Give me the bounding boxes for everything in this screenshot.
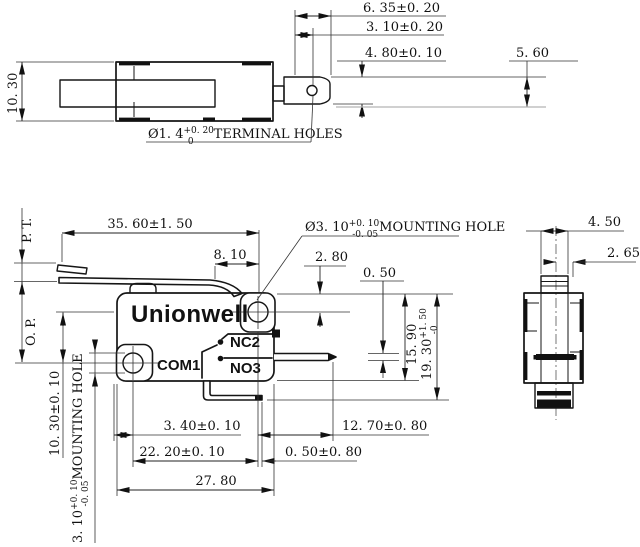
dim-body-width: 27. 80 [195,474,236,489]
lever-free-tip [57,265,87,274]
brand-logo: Unionwell [131,301,249,328]
top-view-terminal-neck [273,86,284,101]
dim-terminal-extension: 12. 70±0. 80 [342,419,427,434]
dim-hole-vertical-pitch: 10. 30±0. 10 [48,371,63,456]
dim-lever-end-offset: 8. 10 [213,248,246,263]
top-view-body [116,62,273,121]
dim-hole-edge-offset: 3. 40±0. 10 [163,419,240,434]
label-terminal-holes: Ø1. 4+0. 200TERMINAL HOLES [148,126,343,147]
dim-lever-length: 35. 60±1. 50 [107,217,192,232]
label-com1: COM1 [157,357,200,374]
label-left-mounting-hole: 3. 10+0. 10-0. 05MOUNTING HOLE [70,353,91,543]
technical-drawing: 10. 30 6. 35±0. 20 3. 10±0. 20 4. 80±0. … [0,0,640,547]
dim-terminal-edge-offset: 0. 50±0. 80 [285,445,362,460]
label-operating-position: O. P. [24,318,39,346]
dim-hole-to-top: 2. 80 [315,250,348,265]
label-nc2: NC2 [230,334,260,351]
label-no3: NO3 [230,360,261,377]
nc-contact-dot [218,339,224,345]
no-contact-dot [218,356,224,362]
common-pole-line [202,345,217,378]
side-terminal-bar [536,354,574,360]
dim-terminal-width: 4. 80±0. 10 [365,46,442,61]
no-terminal [274,354,336,361]
dim-top-body-depth: 10. 30 [6,73,21,114]
com-terminal-tip [255,396,262,401]
front-view: Unionwell COM1 NC2 NO3 35. 60±1. 50 8. 1… [14,208,505,543]
dim-hole-offset: 3. 10±0. 20 [366,20,443,35]
side-body [524,293,583,383]
side-view: 4. 50 2. 65 [524,215,640,420]
label-mounting-hole: Ø3. 10+0. 10-0. 05MOUNTING HOLE [305,219,505,240]
side-plunger [541,276,568,293]
top-view: 10. 30 6. 35±0. 20 3. 10±0. 20 4. 80±0. … [6,1,578,147]
top-view-lever [60,80,215,107]
dim-terminal-thickness: 0. 50 [363,266,396,281]
drawing-canvas: 10. 30 6. 35±0. 20 3. 10±0. 20 4. 80±0. … [0,0,640,547]
nc-terminal-stub [272,330,280,338]
terminal-hole [307,86,317,96]
dim-terminal-span: 6. 35±0. 20 [363,1,440,16]
top-view-tab-small [203,118,215,122]
label-pretravel: P. T. [20,218,35,243]
dim-body-height: 15. 90 [405,324,420,365]
dim-hole-pitch: 22. 20±0. 10 [139,445,224,460]
dim-plunger-offset: 2. 65 [607,246,640,261]
dim-terminal-clearance: 5. 60 [516,46,549,61]
com-terminal [204,381,263,400]
dim-plunger-width: 4. 50 [588,215,621,230]
